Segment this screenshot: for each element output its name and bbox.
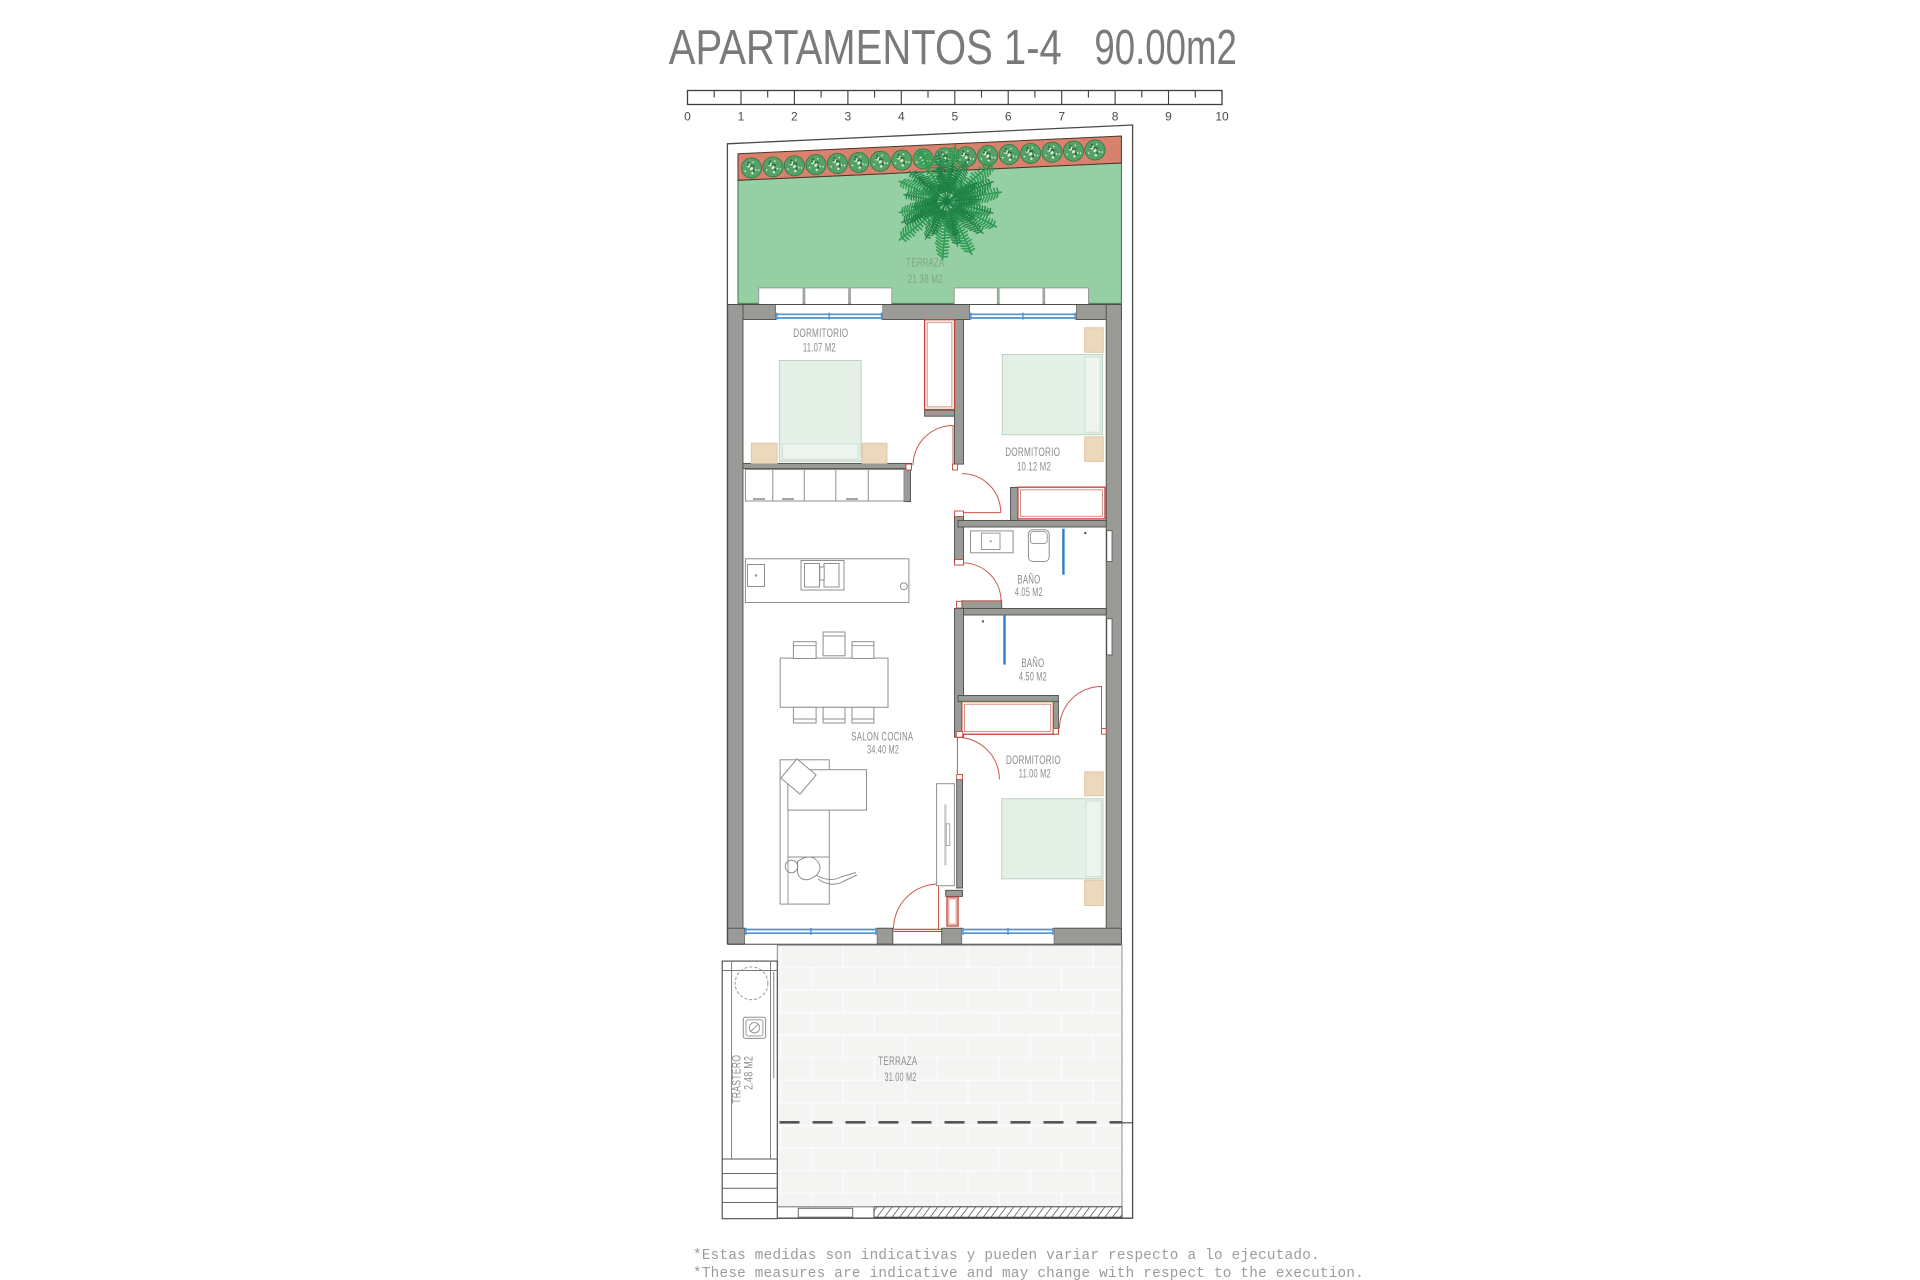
svg-text:34.40 M2: 34.40 M2 [867,745,899,757]
svg-text:3: 3 [845,110,852,124]
svg-text:DORMITORIO: DORMITORIO [793,328,848,340]
svg-text:DORMITORIO: DORMITORIO [1005,447,1060,459]
svg-text:APARTAMENTOS 1-4: APARTAMENTOS 1-4 [669,21,1062,75]
svg-text:21.38 M2: 21.38 M2 [908,274,943,286]
svg-text:10.12 M2: 10.12 M2 [1017,462,1051,474]
svg-text:SALON COCINA: SALON COCINA [851,732,913,744]
svg-text:6: 6 [1005,110,1012,124]
svg-text:1: 1 [738,110,745,124]
svg-text:TRASTERO: TRASTERO [731,1055,743,1104]
svg-text:4.05 M2: 4.05 M2 [1015,587,1043,599]
svg-text:10: 10 [1215,110,1229,124]
svg-text:TERRAZA: TERRAZA [906,258,944,270]
svg-text:7: 7 [1058,110,1065,124]
svg-text:2.48 M2: 2.48 M2 [744,1056,756,1090]
svg-text:9: 9 [1165,110,1172,124]
svg-text:2: 2 [791,110,798,124]
svg-text:4.50 M2: 4.50 M2 [1019,672,1047,684]
svg-text:90.00m2: 90.00m2 [1094,21,1237,75]
svg-text:5: 5 [951,110,958,124]
svg-text:11.00 M2: 11.00 M2 [1019,769,1051,781]
svg-text:BAÑO: BAÑO [1017,574,1040,587]
svg-text:*Estas medidas son indicativas: *Estas medidas son indicativas y pueden … [693,1248,1320,1264]
svg-text:DORMITORIO: DORMITORIO [1006,755,1061,767]
svg-text:BAÑO: BAÑO [1021,657,1044,670]
svg-text:*These measures are indicative: *These measures are indicative and may c… [693,1266,1364,1280]
svg-text:8: 8 [1112,110,1119,124]
svg-text:11.07 M2: 11.07 M2 [803,343,836,355]
svg-text:0: 0 [684,110,691,124]
svg-text:4: 4 [898,110,905,124]
svg-text:TERRAZA: TERRAZA [878,1056,917,1068]
svg-text:31.00 M2: 31.00 M2 [885,1072,917,1084]
